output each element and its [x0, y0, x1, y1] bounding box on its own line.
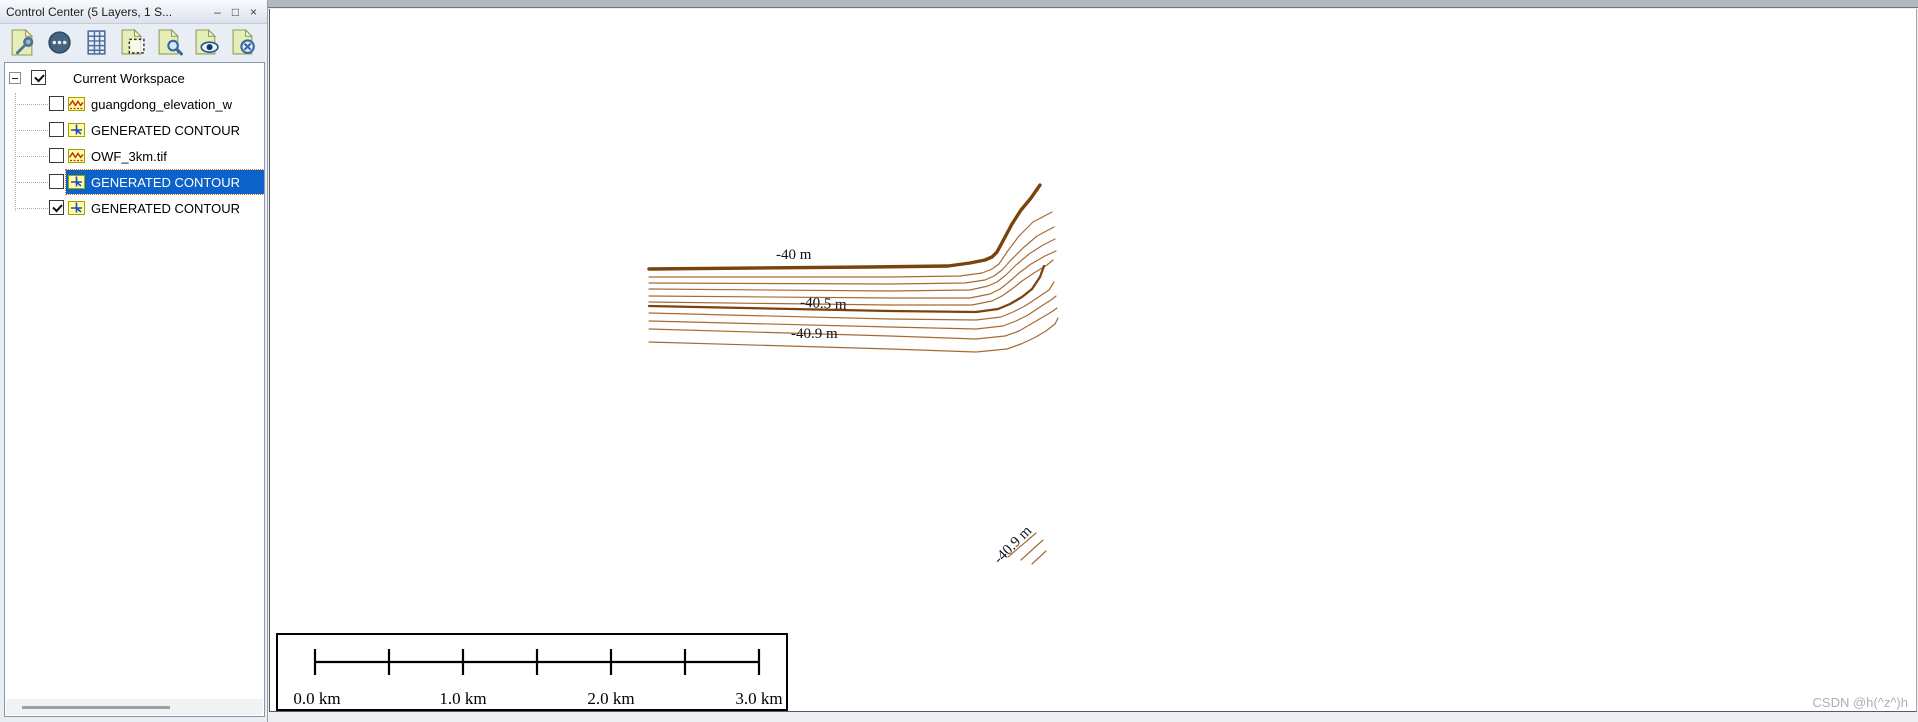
collapse-expander-icon[interactable]: [9, 72, 21, 84]
metadata-icon: [46, 29, 73, 56]
minimize-button[interactable]: –: [210, 3, 225, 21]
contour-path: [649, 308, 1057, 339]
layer-row-5[interactable]: GENERATED CONTOUR: [5, 195, 264, 221]
scrollbar-thumb[interactable]: [22, 706, 170, 709]
close-button[interactable]: ×: [246, 3, 261, 21]
scale-label-1km: 1.0 km: [439, 689, 486, 709]
map-top-frame: [268, 0, 1918, 8]
layer-row-2[interactable]: GENERATED CONTOUR: [5, 117, 264, 143]
layer-checkbox[interactable]: [49, 148, 64, 163]
vector-layer-icon: [68, 123, 85, 137]
layer-checkbox[interactable]: [49, 122, 64, 137]
layer-tree: Current Workspace guangdong_elevation_w …: [5, 65, 264, 698]
horizontal-scrollbar[interactable]: [6, 699, 263, 715]
watermark-text: CSDN @h(^z^)h: [1813, 695, 1908, 710]
scale-label-2km: 2.0 km: [587, 689, 634, 709]
control-center-window: Control Center (5 Layers, 1 S... – □ ×: [0, 0, 268, 722]
scale-label-0km: 0.0 km: [293, 689, 340, 709]
map-area: -40 m -40.5 m -40.9 m -40.9 m 0.0 km 1.0…: [268, 0, 1918, 722]
zoom-to-layer-button[interactable]: [156, 28, 186, 58]
tree-root-row[interactable]: Current Workspace: [5, 65, 264, 91]
vector-layer-icon: [68, 175, 85, 189]
contour-label-40m: -40 m: [776, 247, 811, 264]
layer-label: guangdong_elevation_w: [91, 97, 264, 112]
scale-bar-ticks: [278, 635, 786, 685]
raster-layer-icon: [68, 149, 85, 163]
contour-label-40-9m: -40.9 m: [791, 326, 838, 343]
map-canvas[interactable]: -40 m -40.5 m -40.9 m -40.9 m 0.0 km 1.0…: [269, 9, 1917, 712]
show-layer-button[interactable]: [193, 28, 223, 58]
contour-label-40-5m: -40.5 m: [800, 295, 847, 314]
layer-checkbox[interactable]: [49, 200, 64, 215]
contour-path: [649, 296, 1056, 329]
zoom-to-layer-icon: [157, 29, 184, 56]
attribute-table-button[interactable]: [81, 28, 111, 58]
layer-label: GENERATED CONTOUR: [91, 201, 264, 216]
contour-hatch: [1032, 551, 1046, 564]
vector-layer-icon: [68, 201, 85, 215]
layer-checkbox[interactable]: [49, 96, 64, 111]
attribute-table-icon: [83, 29, 110, 56]
crop-selection-icon: [120, 29, 147, 56]
scale-label-3km: 3.0 km: [735, 689, 782, 709]
hide-layer-icon: [231, 29, 258, 56]
workspace-label: Current Workspace: [73, 71, 264, 86]
scale-bar: 0.0 km 1.0 km 2.0 km 3.0 km: [276, 633, 788, 711]
contour-path-major: [649, 185, 1040, 269]
layer-label: GENERATED CONTOUR: [91, 175, 264, 190]
raster-layer-icon: [68, 97, 85, 111]
layer-row-4-selected[interactable]: GENERATED CONTOUR: [5, 169, 264, 195]
layer-tree-panel: Current Workspace guangdong_elevation_w …: [4, 62, 265, 717]
window-titlebar[interactable]: Control Center (5 Layers, 1 S... – □ ×: [0, 0, 267, 24]
layer-toolbar: [0, 24, 267, 61]
maximize-button[interactable]: □: [228, 3, 243, 21]
contour-lines: [270, 9, 1918, 712]
window-title: Control Center (5 Layers, 1 S...: [6, 5, 207, 19]
layer-label: OWF_3km.tif: [91, 149, 264, 164]
metadata-button[interactable]: [44, 28, 74, 58]
layer-row-1[interactable]: guangdong_elevation_w: [5, 91, 264, 117]
workspace-checkbox[interactable]: [31, 70, 46, 85]
crop-selection-button[interactable]: [118, 28, 148, 58]
layer-options-button[interactable]: [7, 28, 37, 58]
layer-checkbox[interactable]: [49, 174, 64, 189]
layer-row-3[interactable]: OWF_3km.tif: [5, 143, 264, 169]
layer-options-icon: [9, 29, 36, 56]
hide-layer-button[interactable]: [230, 28, 260, 58]
layer-label: GENERATED CONTOUR: [91, 123, 264, 138]
show-layer-icon: [194, 29, 221, 56]
